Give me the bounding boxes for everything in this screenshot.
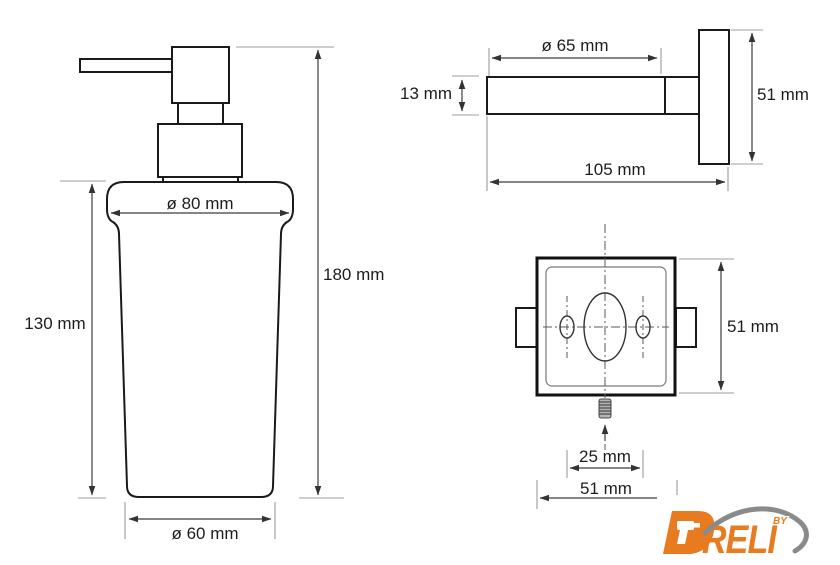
drill-body	[677, 521, 694, 530]
right-mount-tab	[676, 308, 696, 347]
dim-body-height: 130 mm	[24, 181, 106, 498]
dim-screw-spacing: 25 mm	[567, 447, 643, 478]
body-height-label: 130 mm	[24, 314, 85, 333]
technical-drawing-sheet: ø 80 mm 130 mm 180 mm ø 60 mm	[0, 0, 840, 565]
dim-plate-height-side: 51 mm	[731, 30, 809, 164]
dim-total-depth: 105 mm	[487, 116, 728, 191]
arm-thickness-label: 13 mm	[400, 84, 452, 103]
top-diameter-label: ø 80 mm	[166, 194, 233, 213]
dim-plate-width: 51 mm	[537, 479, 677, 509]
wall-plate-side	[699, 30, 729, 164]
plate-width-label: 51 mm	[580, 479, 632, 498]
dim-arm-thickness: 13 mm	[400, 76, 479, 115]
pump-neck	[178, 103, 223, 124]
dim-bottom-diameter: ø 60 mm	[125, 502, 275, 543]
logo-byline: BY	[773, 516, 788, 527]
back-view: 51 mm 25 mm 51 mm	[516, 224, 779, 509]
plate-height-back-label: 51 mm	[727, 317, 779, 336]
screw-spacing-label: 25 mm	[579, 447, 631, 466]
set-screw	[599, 399, 611, 452]
total-height-label: 180 mm	[323, 265, 384, 284]
side-view: ø 65 mm 13 mm 51 mm 105 mm	[400, 30, 809, 191]
holder-arm	[487, 77, 665, 114]
arm-diameter-label: ø 65 mm	[541, 36, 608, 55]
holder-arm-connector	[665, 77, 699, 114]
pump-collar	[158, 124, 242, 177]
pump-spout	[80, 59, 172, 72]
bottle-body	[107, 182, 293, 497]
dimension-diagram: ø 80 mm 130 mm 180 mm ø 60 mm	[0, 0, 840, 565]
pump-head	[172, 47, 229, 103]
front-view: ø 80 mm 130 mm 180 mm ø 60 mm	[24, 47, 384, 543]
dim-arm-diameter: ø 65 mm	[489, 36, 661, 76]
total-depth-label: 105 mm	[584, 160, 645, 179]
bottom-diameter-label: ø 60 mm	[171, 524, 238, 543]
brand-logo: RELI BY	[663, 509, 806, 562]
left-mount-tab	[516, 308, 537, 347]
drill-chuck	[694, 523, 700, 528]
plate-height-side-label: 51 mm	[757, 85, 809, 104]
